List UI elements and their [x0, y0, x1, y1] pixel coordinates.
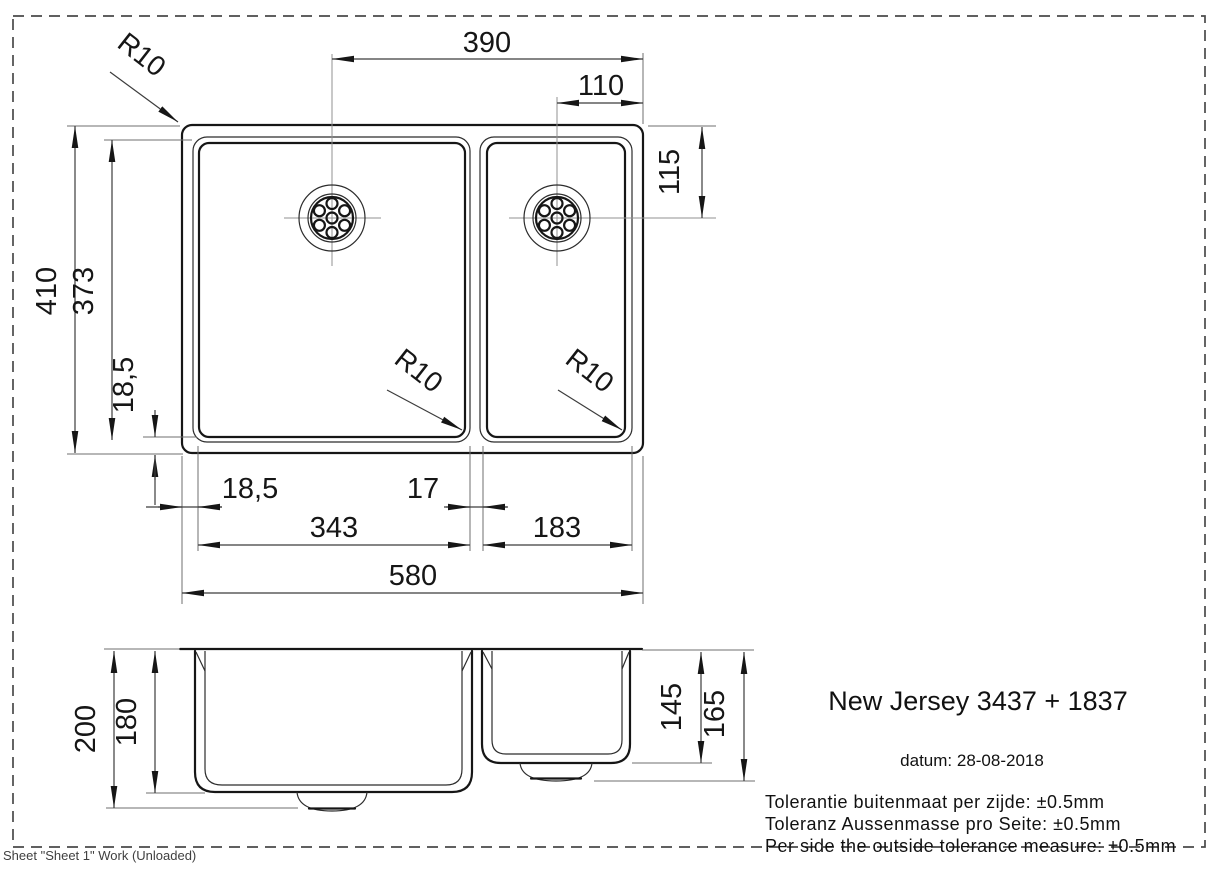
- dim-180: 180: [111, 651, 155, 793]
- dim-343-label: 343: [310, 512, 358, 544]
- dim-145-label: 145: [656, 683, 688, 731]
- dim-390-label: 390: [463, 27, 511, 59]
- sheet-status: Sheet "Sheet 1" Work (Unloaded): [3, 848, 196, 863]
- dim-390: 390: [332, 27, 643, 59]
- page-border: [13, 16, 1205, 847]
- tolerance-line-english: Per side the outside tolerance measure: …: [765, 836, 1176, 856]
- dim-18-5-v-label: 18,5: [108, 357, 140, 413]
- dim-145: 145: [656, 652, 701, 763]
- side-view: 200 180 145 165: [70, 649, 755, 811]
- dim-18-5-vertical: 18,5: [108, 357, 155, 505]
- dim-165: 165: [699, 652, 744, 781]
- dim-18-5-horizontal: 18,5: [146, 473, 278, 507]
- date-line: datum: 28-08-2018: [900, 751, 1044, 770]
- radius-bowl-right-label: R10: [560, 342, 620, 398]
- dim-580-label: 580: [389, 560, 437, 592]
- drawing-sheet: 390 110 115 410 373 18,5 18,5: [0, 0, 1220, 874]
- dim-115: 115: [654, 127, 702, 218]
- dim-18-5-h-label: 18,5: [222, 473, 278, 505]
- dim-343: 343: [198, 512, 470, 545]
- radius-callout-bowl-right: R10: [558, 342, 622, 430]
- drain-centerlines: [284, 54, 716, 266]
- tolerance-line-dutch: Tolerantie buitenmaat per zijde: ±0.5mm: [765, 792, 1105, 812]
- extension-lines-top-view: [67, 53, 716, 604]
- dim-165-label: 165: [699, 690, 731, 738]
- radius-callout-bowl-left: R10: [387, 342, 462, 430]
- radius-corner-label: R10: [112, 26, 172, 82]
- dim-115-label: 115: [654, 149, 686, 195]
- dim-200: 200: [70, 651, 114, 808]
- product-title: New Jersey 3437 + 1837: [828, 686, 1127, 716]
- dim-410-label: 410: [31, 267, 63, 315]
- dim-373-label: 373: [68, 267, 100, 315]
- tolerance-line-german: Toleranz Aussenmasse pro Seite: ±0.5mm: [765, 814, 1121, 834]
- dim-110-label: 110: [578, 70, 624, 102]
- dim-17-label: 17: [407, 473, 439, 505]
- dim-183-label: 183: [533, 512, 581, 544]
- dim-17: 17: [407, 473, 508, 507]
- dim-110: 110: [557, 70, 643, 103]
- dim-183: 183: [483, 512, 632, 545]
- radius-bowl-left-label: R10: [389, 342, 449, 398]
- top-view: 390 110 115 410 373 18,5 18,5: [31, 26, 716, 604]
- dim-200-label: 200: [70, 705, 102, 753]
- sink-outline-side: [180, 649, 642, 811]
- dim-180-label: 180: [111, 698, 143, 746]
- dim-580: 580: [182, 560, 643, 593]
- title-block: New Jersey 3437 + 1837 datum: 28-08-2018…: [765, 686, 1176, 856]
- radius-callout-corner: R10: [110, 26, 178, 122]
